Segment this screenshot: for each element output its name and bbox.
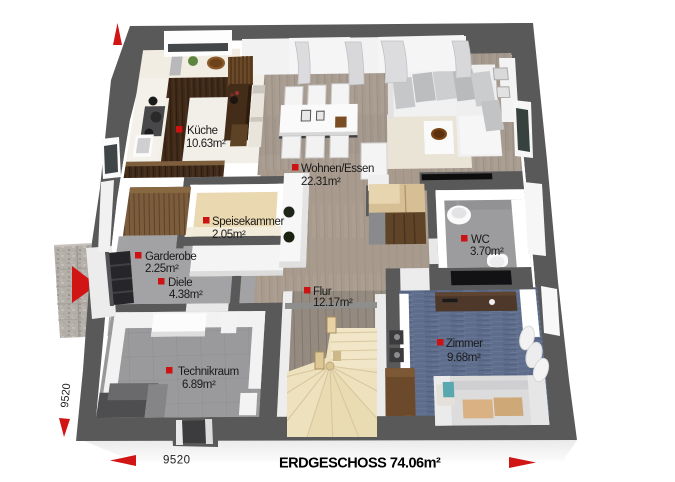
svg-text:2.25m²: 2.25m² bbox=[145, 263, 179, 275]
svg-text:ERDGESCHOSS 74.06m²: ERDGESCHOSS 74.06m² bbox=[279, 456, 441, 472]
svg-text:9.68m²: 9.68m² bbox=[447, 352, 481, 364]
svg-text:Technikraum: Technikraum bbox=[178, 366, 239, 378]
svg-text:6.89m²: 6.89m² bbox=[182, 379, 216, 391]
svg-text:22.31m²: 22.31m² bbox=[301, 176, 341, 188]
svg-text:Garderobe: Garderobe bbox=[145, 251, 196, 263]
svg-text:2.05m²: 2.05m² bbox=[212, 229, 246, 241]
svg-text:Zimmer: Zimmer bbox=[446, 338, 483, 350]
svg-text:9520: 9520 bbox=[59, 383, 73, 408]
svg-text:3.70m²: 3.70m² bbox=[470, 246, 504, 258]
svg-text:Speisekammer: Speisekammer bbox=[212, 216, 284, 228]
svg-text:9520: 9520 bbox=[163, 455, 191, 467]
svg-text:10.63m²: 10.63m² bbox=[186, 138, 226, 150]
svg-text:Diele: Diele bbox=[168, 277, 192, 289]
svg-text:Wohnen/Essen: Wohnen/Essen bbox=[301, 163, 374, 175]
svg-text:Küche: Küche bbox=[187, 125, 218, 137]
svg-text:WC: WC bbox=[471, 234, 489, 246]
svg-text:4.38m²: 4.38m² bbox=[169, 289, 203, 301]
svg-text:12.17m²: 12.17m² bbox=[313, 297, 353, 309]
